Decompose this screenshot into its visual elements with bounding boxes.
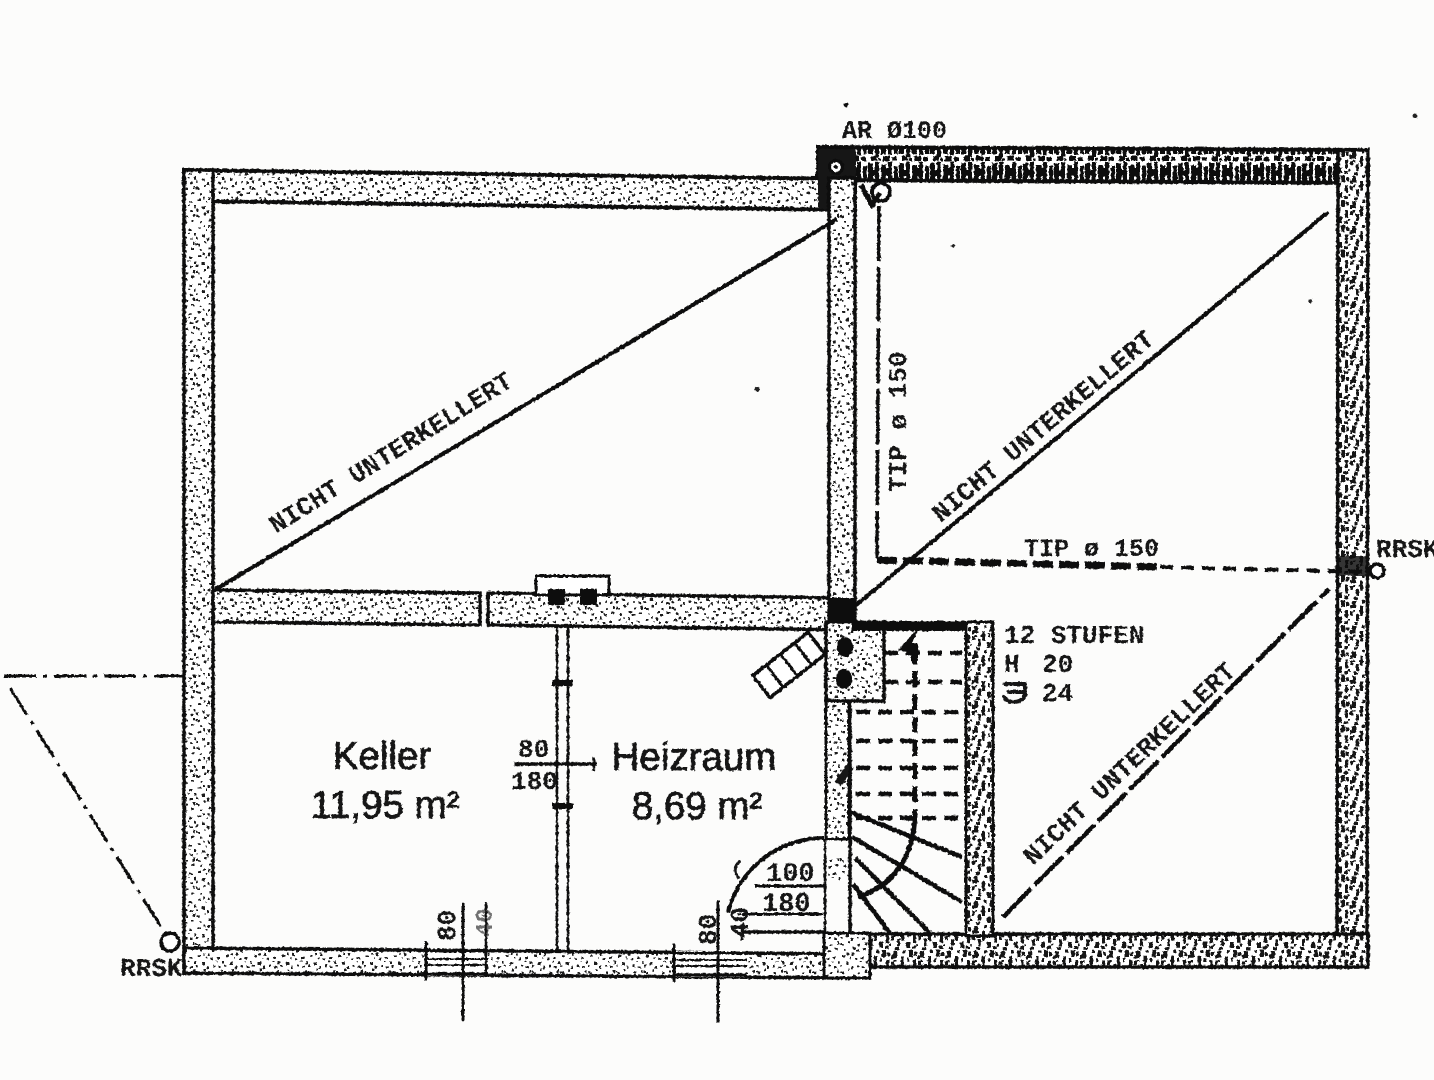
svg-text:12 STUFEN: 12 STUFEN bbox=[1004, 621, 1144, 651]
svg-text:80: 80 bbox=[518, 735, 549, 765]
svg-text:20: 20 bbox=[1042, 650, 1073, 680]
svg-text:11,95 m²: 11,95 m² bbox=[310, 784, 459, 827]
svg-text:AR Ø100: AR Ø100 bbox=[842, 117, 947, 146]
svg-text:40: 40 bbox=[473, 908, 500, 937]
svg-text:24: 24 bbox=[1042, 679, 1073, 709]
svg-text:40: 40 bbox=[726, 907, 756, 938]
svg-text:80: 80 bbox=[433, 910, 463, 941]
svg-text:RRSK: RRSK bbox=[120, 954, 183, 984]
svg-text:8,69 m²: 8,69 m² bbox=[632, 785, 763, 828]
svg-text:180: 180 bbox=[511, 767, 558, 797]
svg-text:TIP ø 150: TIP ø 150 bbox=[884, 352, 914, 492]
svg-text:RRSK: RRSK bbox=[1376, 535, 1434, 565]
svg-text:TIP ø 150: TIP ø 150 bbox=[1024, 535, 1159, 564]
svg-text:80: 80 bbox=[694, 914, 724, 945]
svg-text:Heizraum: Heizraum bbox=[612, 736, 777, 779]
svg-text:H: H bbox=[1004, 650, 1020, 680]
svg-text:Keller: Keller bbox=[333, 735, 432, 778]
